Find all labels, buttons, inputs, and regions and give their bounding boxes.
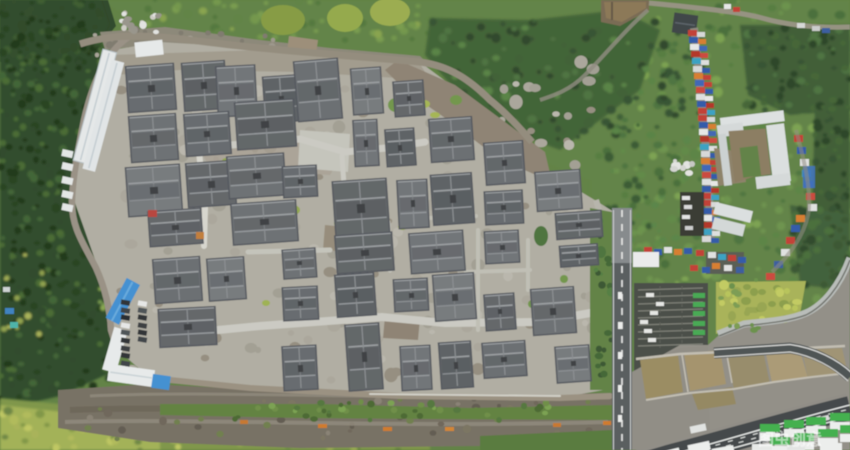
- svg-text:图虫创意: 图虫创意: [758, 430, 822, 449]
